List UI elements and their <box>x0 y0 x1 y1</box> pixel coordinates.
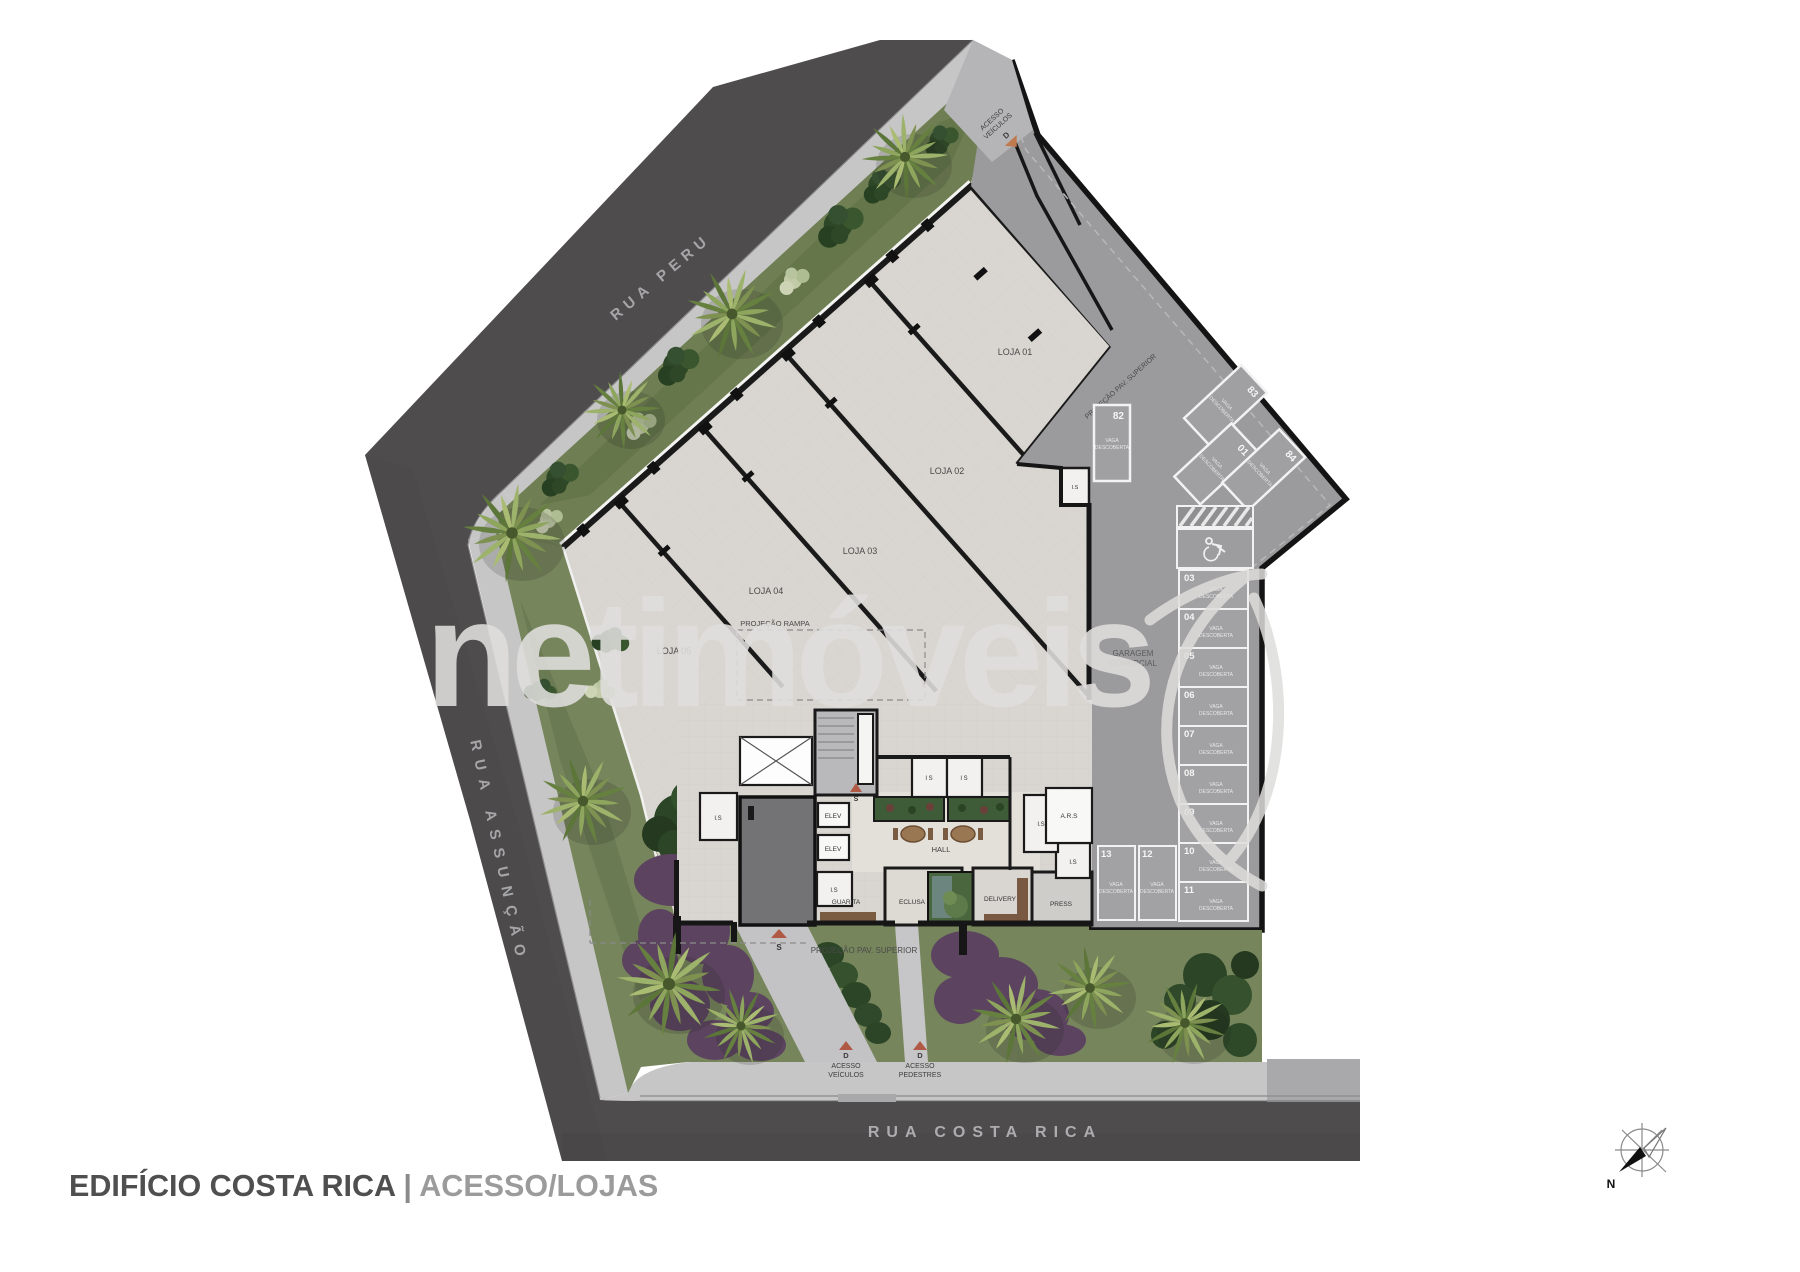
svg-text:HALL: HALL <box>932 845 951 854</box>
svg-text:VAGA: VAGA <box>1209 743 1223 749</box>
svg-text:VAGA: VAGA <box>1209 821 1223 827</box>
svg-text:DESCOBERTA: DESCOBERTA <box>1199 633 1234 639</box>
svg-text:RUA COSTA RICA: RUA COSTA RICA <box>868 1124 1102 1141</box>
svg-text:08: 08 <box>1184 768 1195 779</box>
svg-text:LOJA 01: LOJA 01 <box>998 347 1033 357</box>
svg-text:D: D <box>843 1051 849 1060</box>
svg-text:VAGA: VAGA <box>1105 438 1119 444</box>
svg-text:VAGA: VAGA <box>1209 899 1223 905</box>
svg-text:82: 82 <box>1113 411 1125 422</box>
svg-text:ACESSO: ACESSO <box>831 1063 861 1070</box>
svg-text:I S: I S <box>925 776 932 782</box>
svg-text:13: 13 <box>1101 849 1112 860</box>
svg-text:ACESSO: ACESSO <box>905 1063 935 1070</box>
svg-text:D: D <box>917 1051 923 1060</box>
svg-text:ELEV: ELEV <box>825 813 842 820</box>
svg-text:10: 10 <box>1184 846 1195 857</box>
svg-text:I S: I S <box>960 776 967 782</box>
svg-text:06: 06 <box>1184 690 1195 701</box>
svg-text:DESCOBERTA: DESCOBERTA <box>1199 672 1234 678</box>
svg-text:12: 12 <box>1142 849 1153 860</box>
svg-text:I.S: I.S <box>830 888 837 894</box>
svg-text:LOJA 03: LOJA 03 <box>843 546 878 556</box>
svg-text:A.R.S: A.R.S <box>1061 813 1079 820</box>
svg-text:LOJA 02: LOJA 02 <box>930 466 965 476</box>
svg-text:ELEV: ELEV <box>825 846 842 853</box>
svg-text:I.S: I.S <box>1069 860 1076 866</box>
svg-text:PROJEÇÃO PAV. SUPERIOR: PROJEÇÃO PAV. SUPERIOR <box>811 946 918 955</box>
svg-text:I.S: I.S <box>1037 822 1044 828</box>
svg-text:S: S <box>776 943 782 952</box>
svg-text:DESCOBERTA: DESCOBERTA <box>1095 445 1130 451</box>
svg-text:VAGA: VAGA <box>1209 782 1223 788</box>
svg-text:PEDESTRES: PEDESTRES <box>899 1072 942 1079</box>
svg-text:04: 04 <box>1184 612 1195 623</box>
svg-text:PRESS: PRESS <box>1050 901 1073 908</box>
svg-text:VAGA: VAGA <box>1209 665 1223 671</box>
svg-text:GUARITA: GUARITA <box>832 899 861 906</box>
svg-text:N: N <box>1607 1177 1616 1191</box>
svg-text:DELIVERY: DELIVERY <box>984 896 1017 903</box>
svg-text:ECLUSA: ECLUSA <box>899 899 926 906</box>
svg-text:I.S: I.S <box>714 816 721 822</box>
svg-text:DESCOBERTA: DESCOBERTA <box>1140 889 1175 895</box>
svg-text:VAGA: VAGA <box>1109 882 1123 888</box>
svg-text:DESCOBERTA: DESCOBERTA <box>1199 750 1234 756</box>
svg-text:DESCOBERTA: DESCOBERTA <box>1099 889 1134 895</box>
svg-text:DESCOBERTA: DESCOBERTA <box>1199 789 1234 795</box>
svg-text:VAGA: VAGA <box>1209 704 1223 710</box>
svg-text:03: 03 <box>1184 573 1195 584</box>
svg-text:EDIFÍCIO COSTA RICA | ACESSO/L: EDIFÍCIO COSTA RICA | ACESSO/LOJAS <box>69 1168 658 1203</box>
svg-text:VEÍCULOS: VEÍCULOS <box>828 1070 864 1079</box>
svg-text:I.S: I.S <box>1072 485 1079 491</box>
svg-text:VAGA: VAGA <box>1209 626 1223 632</box>
svg-text:DESCOBERTA: DESCOBERTA <box>1199 906 1234 912</box>
svg-text:11: 11 <box>1184 885 1195 896</box>
svg-text:DESCOBERTA: DESCOBERTA <box>1199 711 1234 717</box>
svg-text:VAGA: VAGA <box>1150 882 1164 888</box>
svg-text:07: 07 <box>1184 729 1195 740</box>
svg-text:S: S <box>854 796 859 803</box>
svg-text:netimóveis: netimóveis <box>425 569 1151 739</box>
